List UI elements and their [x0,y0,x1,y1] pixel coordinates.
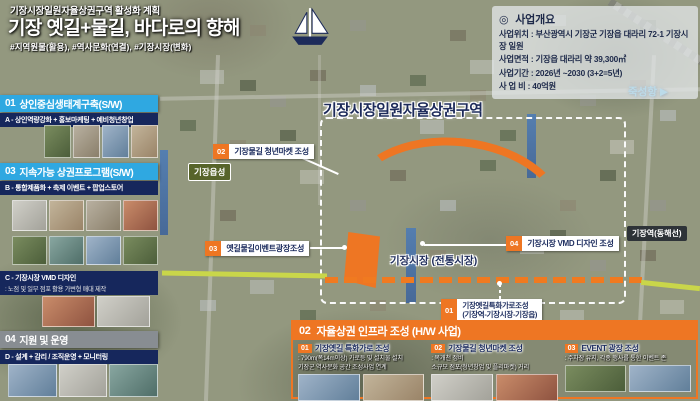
anchor-dot [497,281,502,286]
band-c-subtitle: : 노점 및 일부 점포 활용 가변형 매대 제작 [5,284,158,293]
photo-thumbnail [123,236,158,265]
item-detail-line: : 복개천 정비 [431,355,557,363]
infra-item-youth-market: 02 기장물길 청년마켓 조성 : 복개천 정비 소규모 점포(청년창업 및 플… [431,343,557,401]
photo-thumbnail [496,374,558,401]
bullet-icon: ◎ [499,14,508,26]
photo-thumbnail [123,200,158,231]
photo-thumbnail [73,125,100,158]
callout-label: 기장시장 VMD 디자인 조성 [522,236,618,251]
infra-item-title-row: 02 기장물길 청년마켓 조성 [431,343,557,354]
band-c-title: C - 기장시장 VMD 디자인 [5,275,76,282]
photo-thumbnail [42,296,95,327]
sidebar-section-03-header: 03 지속가능 상권프로그램(S/W) [0,163,158,180]
page-title: 기장 옛길+물길, 바다로의 향해 [8,13,240,40]
item-detail-line: 기장군 역사문화 공간 조성사업 연계 [298,364,424,372]
overview-row-area: 사업면적 : 기장읍 대라리 약 39,300㎡ [499,54,691,66]
item-title: 기장물길 청년마켓 조성 [448,343,522,354]
panel-number: 02 [299,325,310,337]
item-detail-line: : 790m(폭14m이상) 가로등 및 설치물 설치 [298,355,424,363]
callout-label: 옛길물길이벤트광장조성 [221,241,309,256]
item-number-badge: 02 [431,344,445,353]
photo-strip-a [44,125,160,158]
leader-line-dashed [499,284,501,300]
photo-thumbnail [431,374,493,401]
anchor-dot [420,241,425,246]
sidebar-band-b: B - 통합제품화 + 축제 이벤트 + 팝업스토어 [0,181,158,195]
photo-thumbnail [565,365,627,392]
place-label-station: 기장역(동해선) [627,226,687,241]
section-number: 01 [5,98,15,109]
item-detail-line: : 주차장 유지, 각종 행사를 통한 이벤트 존 [565,355,691,363]
panel-title: 자율상권 인프라 조성 (H/W 사업) [316,323,460,339]
section-title: 상인중심생태계구축(S/W) [19,96,122,111]
item-title: EVENT 광장 조성 [581,343,638,354]
photo-thumbnail [12,200,47,231]
callout-01-themed-street: 01 기장옛길특화가로조성 (기장역-기장시장-기장읍) [441,299,542,322]
district-title: 기장시장일원자율상권구역 [323,99,483,120]
photo-thumbnail [298,374,360,401]
waterway-strip [160,150,168,235]
callout-number-badge: 01 [441,299,457,322]
infra-items-row: 01 기장옛길 특화가로 조성 : 790m(폭14m이상) 가로등 및 설치물… [293,340,696,401]
callout-label-line2: (기장역-기장시장-기장읍) [462,310,537,319]
sidebar-section-01-header: 01 상인중심생태계구축(S/W) [0,95,158,112]
callout-number-badge: 03 [205,241,221,256]
item-photo-strip [298,374,424,401]
section-number: 04 [5,334,15,345]
overview-row-location: 사업위치 : 부산광역시 기장군 기장읍 대라리 72-1 기장시장 일원 [499,29,691,52]
sidebar-band-d: D - 설계 + 감리 / 조직운영 + 모니터링 [0,350,158,364]
section-title: 지속가능 상권프로그램(S/W) [19,164,133,179]
callout-label: 기장옛길특화가로조성 (기장역-기장시장-기장읍) [457,299,542,322]
photo-thumbnail [49,200,84,231]
callout-04-vmd-design: 04 기장시장 VMD 디자인 조성 [506,236,619,251]
item-photo-strip [565,365,691,392]
photo-strip-c [42,296,152,327]
sailboat-icon [288,6,332,53]
overview-row-budget: 사 업 비 : 40억원 [499,81,691,93]
infra-item-event-plaza: 03 EVENT 광장 조성 : 주차장 유지, 각종 행사를 통한 이벤트 존 [565,343,691,401]
leader-line [424,244,506,246]
infra-item-title-row: 03 EVENT 광장 조성 [565,343,691,354]
sidebar-section-04-header: 04 지원 및 운영 [0,331,158,348]
photo-strip-b2 [12,236,160,265]
callout-number-badge: 04 [506,236,522,251]
callout-03-event-plaza: 03 옛길물길이벤트광장조성 [205,241,309,256]
callout-number-badge: 02 [213,144,229,159]
anchor-dot [342,245,347,250]
photo-thumbnail [86,200,121,231]
section-title: 지원 및 운영 [19,332,68,347]
photo-thumbnail [629,365,691,392]
item-number-badge: 01 [298,344,312,353]
photo-thumbnail [49,236,84,265]
infra-panel: 02 자율상권 인프라 조성 (H/W 사업) 01 기장옛길 특화가로 조성 … [291,320,698,399]
item-title: 기장옛길 특화가로 조성 [315,343,389,354]
infra-item-title-row: 01 기장옛길 특화가로 조성 [298,343,424,354]
section-number: 03 [5,166,15,177]
infra-panel-header: 02 자율상권 인프라 조성 (H/W 사업) [293,322,696,340]
callout-label: 기장물길 청년마켓 조성 [229,144,313,159]
photo-thumbnail [109,364,158,397]
photo-strip-b1 [12,200,160,231]
hashtag-line: #지역원물(활용), #역사문화(연결), #기장시장(변화) [10,41,191,53]
project-overview-box: ◎ 사업개요 사업위치 : 부산광역시 기장군 기장읍 대라리 72-1 기장시… [492,6,698,99]
photo-thumbnail [12,236,47,265]
plan-poster: 기장시장일원자율상권구역 기장시장 (전통시장) 기장읍성 기장역(동해선) 죽… [0,0,700,401]
photo-thumbnail [102,125,129,158]
photo-thumbnail [59,364,108,397]
callout-label-line1: 기장옛길특화가로조성 [462,301,528,310]
themed-street-dashed-line [325,277,643,283]
item-detail-line: 소규모 점포(청년창업 및 플리마켓) 거리 [431,364,557,372]
photo-thumbnail [97,296,150,327]
photo-thumbnail [131,125,158,158]
callout-02-youth-market: 02 기장물길 청년마켓 조성 [213,144,314,159]
photo-thumbnail [86,236,121,265]
photo-thumbnail [363,374,425,401]
photo-thumbnail [8,364,57,397]
overview-title: 사업개요 [515,14,555,26]
item-photo-strip [431,374,557,401]
photo-strip-d [8,364,160,397]
overview-title-row: ◎ 사업개요 [499,11,691,27]
item-number-badge: 03 [565,344,579,353]
place-label-eupseong: 기장읍성 [188,163,231,181]
sidebar-band-c: C - 기장시장 VMD 디자인 : 노점 및 일부 점포 활용 가변형 매대 … [0,271,158,295]
infra-item-street: 01 기장옛길 특화가로 조성 : 790m(폭14m이상) 가로등 및 설치물… [298,343,424,401]
overview-row-period: 사업기간 : 2026년 ~2030 (3+2=5년) [499,68,691,80]
market-label: 기장시장 (전통시장) [390,253,477,268]
leader-line [310,247,344,249]
photo-thumbnail [44,125,71,158]
